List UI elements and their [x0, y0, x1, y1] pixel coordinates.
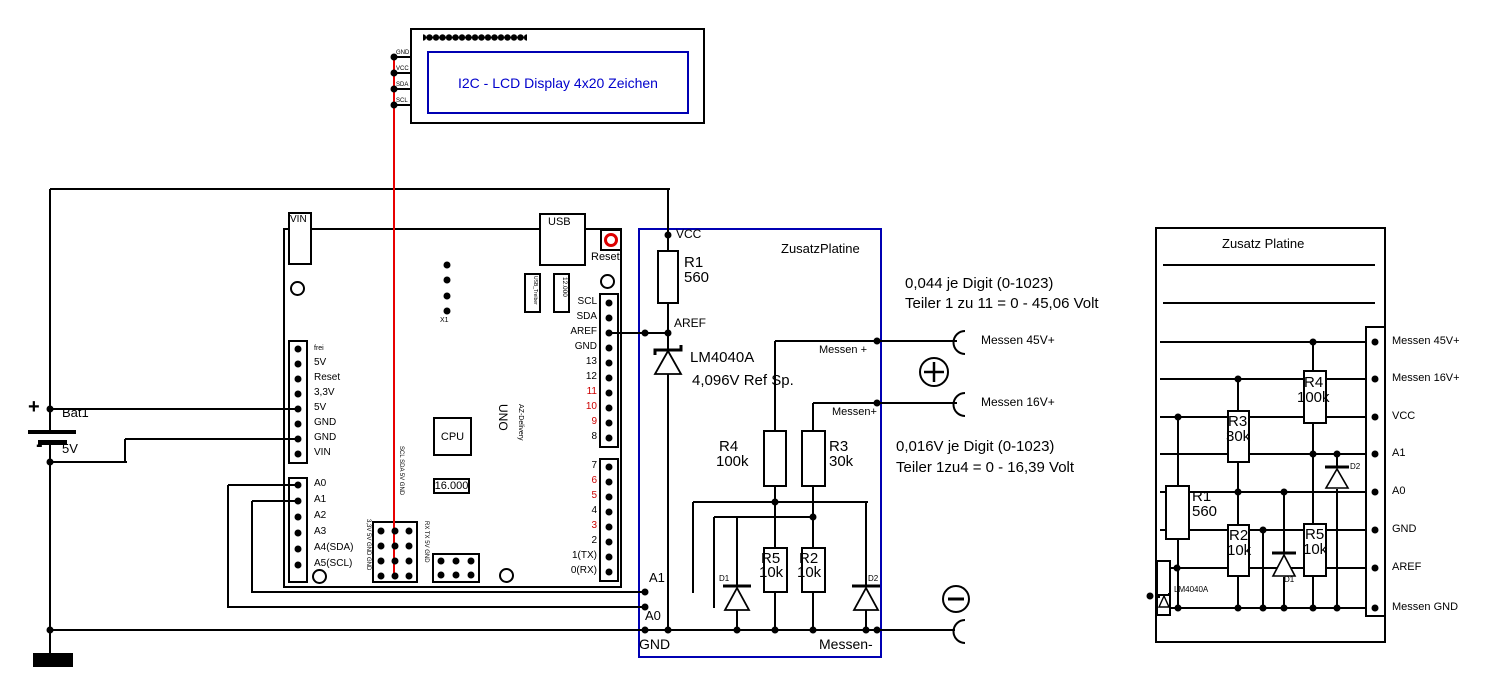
wire-segment	[124, 439, 126, 463]
junction-dot	[438, 572, 445, 579]
wire-segment	[692, 502, 694, 593]
analog-pin-label: A3	[314, 526, 326, 537]
vcc-label: VCC	[676, 228, 701, 241]
junction-dot	[1372, 605, 1379, 612]
layout-resistor-r1	[1165, 485, 1190, 540]
junction-dot	[295, 514, 302, 521]
junction-dot	[606, 539, 613, 546]
diode-d2-label: D2	[868, 575, 878, 584]
junction-dot	[665, 330, 672, 337]
crystal-16mhz: 16.000	[433, 478, 470, 494]
junction-dot	[444, 277, 451, 284]
junction-dot	[1310, 605, 1317, 612]
digital-pin-label: 0(RX)	[555, 565, 597, 576]
junction-dot	[1310, 339, 1317, 346]
junction-dot	[1260, 605, 1267, 612]
junction-dot	[406, 573, 413, 580]
diode-d2	[851, 584, 881, 612]
battery-name: Bat1	[62, 406, 89, 420]
junction-dot	[1372, 376, 1379, 383]
vref-value-label: 4,096V Ref Sp.	[692, 373, 794, 390]
wire-segment	[1177, 540, 1179, 609]
digital-pin-label: 9	[555, 416, 597, 427]
power-pin-label: frei	[314, 345, 324, 353]
layout-r3-value: 30k	[1226, 429, 1250, 446]
wire-segment	[50, 461, 127, 463]
resistor-r3	[801, 430, 826, 487]
junction-dot	[438, 558, 445, 565]
junction-dot	[1235, 376, 1242, 383]
reset-label: Reset	[591, 251, 620, 263]
junction-dot	[606, 420, 613, 427]
junction-dot	[642, 330, 649, 337]
junction-dot	[606, 345, 613, 352]
junction-dot	[406, 543, 413, 550]
layout-diode-d2	[1324, 465, 1350, 490]
junction-dot	[772, 499, 779, 506]
junction-dot	[1281, 489, 1288, 496]
power-pin-label: 5V	[314, 402, 326, 413]
junction-dot	[1372, 565, 1379, 572]
a1-pin-label: A1	[649, 571, 665, 585]
wire-segment	[608, 332, 670, 334]
note-45v-line1: 0,044 je Digit (0-1023)	[905, 276, 1053, 293]
wire-segment	[1312, 342, 1314, 371]
messen-minus-label: Messen-	[819, 637, 873, 652]
junction-dot	[392, 558, 399, 565]
cpu-chip: CPU	[433, 417, 472, 456]
terminal-messen16	[949, 391, 975, 417]
junction-dot	[606, 435, 613, 442]
wire-segment	[1177, 417, 1179, 486]
junction-dot	[295, 361, 302, 368]
digital-pin-label: 11	[555, 386, 597, 397]
wire-segment	[125, 438, 299, 440]
wire-segment	[812, 403, 814, 431]
layout-r4-value: 100k	[1297, 390, 1330, 407]
wire-segment	[1160, 416, 1365, 418]
junction-dot	[392, 543, 399, 550]
junction-dot	[295, 451, 302, 458]
plus-symbol	[918, 356, 950, 388]
note-16v-line1: 0,016V je Digit (0-1023)	[896, 439, 1054, 456]
junction-dot	[1372, 339, 1379, 346]
junction-dot	[606, 390, 613, 397]
digital-pin-label: 1(TX)	[555, 550, 597, 561]
lcd-display-area: I2C - LCD Display 4x20 Zeichen	[427, 51, 689, 114]
junction-dot	[606, 569, 613, 576]
crystal-label: 16.000	[435, 480, 469, 492]
junction-dot	[406, 558, 413, 565]
junction-dot	[606, 464, 613, 471]
layout-r5-value: 10k	[1303, 542, 1327, 559]
terminal-messen16-label: Messen 16V+	[981, 396, 1055, 409]
analog-pin-label: A0	[314, 478, 326, 489]
wire-segment	[1237, 379, 1239, 411]
battery-plus-sign: +	[28, 396, 40, 418]
digital-pin-label: 4	[555, 505, 597, 516]
junction-dot	[606, 375, 613, 382]
junction-dot	[606, 554, 613, 561]
junction-dot	[1372, 451, 1379, 458]
layout-pin-label: GND	[1392, 523, 1416, 535]
junction-dot	[1372, 527, 1379, 534]
digital-header-bottom	[599, 458, 619, 582]
junction-dot	[665, 627, 672, 634]
junction-dot	[378, 558, 385, 565]
power-pin-label: 5V	[314, 357, 326, 368]
wire-segment	[1163, 264, 1375, 266]
layout-board-title: Zusatz Platine	[1222, 237, 1304, 251]
resistor-r2-value: 10k	[797, 565, 821, 582]
analog-pin-label: A4(SDA)	[314, 542, 353, 553]
layout-pin-label: A0	[1392, 485, 1405, 497]
lcd-display-label: I2C - LCD Display 4x20 Zeichen	[458, 75, 658, 91]
digital-pin-label: 12	[555, 371, 597, 382]
digital-pin-label: 5	[555, 490, 597, 501]
junction-dot	[444, 293, 451, 300]
wire-segment	[693, 501, 868, 503]
junction-dot	[406, 528, 413, 535]
wire-segment	[49, 189, 51, 431]
junction-dot	[606, 524, 613, 531]
junction-dot	[444, 308, 451, 315]
junction-dot	[295, 546, 302, 553]
wire-segment	[736, 517, 738, 587]
digital-pin-label: AREF	[555, 326, 597, 337]
junction-dot	[295, 498, 302, 505]
junction-dot	[606, 479, 613, 486]
wire-segment	[227, 485, 229, 608]
junction-dot	[606, 300, 613, 307]
junction-dot	[295, 406, 302, 413]
junction-dot	[1310, 451, 1317, 458]
layout-r1-value: 560	[1192, 504, 1217, 521]
lcd-pin-label: VCC	[396, 66, 409, 73]
usb-label: USB	[548, 216, 571, 228]
junction-dot	[1147, 593, 1154, 600]
junction-dot	[810, 627, 817, 634]
layout-vref-label: LM4040A	[1174, 586, 1208, 595]
layout-diode-d1	[1271, 551, 1297, 578]
wire-segment	[50, 188, 670, 190]
resistor-r1-value: 560	[684, 270, 709, 287]
wire-segment	[1163, 302, 1375, 304]
wire-segment	[774, 487, 776, 548]
wire-segment	[1262, 530, 1264, 609]
junction-dot	[1334, 451, 1341, 458]
digital-pin-label: GND	[555, 341, 597, 352]
wire-segment	[775, 340, 957, 342]
digital-pin-label: 6	[555, 475, 597, 486]
junction-dot	[47, 627, 54, 634]
junction-dot	[295, 391, 302, 398]
layout-pin-label: VCC	[1392, 410, 1415, 422]
analog-pin-label: A2	[314, 510, 326, 521]
diode-d1-label: D1	[719, 575, 729, 584]
power-header	[288, 340, 308, 464]
messen-plus-16-label: Messen+	[832, 406, 877, 418]
junction-dot	[1235, 605, 1242, 612]
digital-pin-label: SCL	[555, 296, 597, 307]
a0-pin-label: A0	[645, 609, 661, 623]
junction-dot	[810, 514, 817, 521]
junction-dot	[642, 589, 649, 596]
usb-chip-label: USB_Treiber	[532, 276, 538, 305]
layout-pin-label: Messen 45V+	[1392, 335, 1460, 347]
junction-dot	[468, 572, 475, 579]
junction-dot	[295, 530, 302, 537]
wire-segment	[1336, 489, 1338, 609]
junction-dot	[1372, 489, 1379, 496]
mounting-hole	[600, 274, 615, 289]
layout-d1-label: D1	[1284, 576, 1294, 585]
cpu-label: CPU	[441, 431, 464, 443]
junction-dot	[295, 436, 302, 443]
wire-segment	[713, 517, 715, 608]
junction-dot	[453, 572, 460, 579]
junction-dot	[606, 330, 613, 337]
junction-dot	[1281, 605, 1288, 612]
wire-segment	[865, 502, 867, 587]
battery-minus-sign: -	[36, 434, 43, 456]
note-16v-line2: Teiler 1zu4 = 0 - 16,39 Volt	[896, 460, 1074, 477]
resistor-r1	[657, 250, 679, 304]
i2c-wire	[393, 54, 395, 578]
junction-dot	[1175, 605, 1182, 612]
vin-label: VIN	[290, 214, 307, 225]
digital-pin-label: 13	[555, 356, 597, 367]
ground-symbol	[33, 653, 73, 667]
terminal-messen45-label: Messen 45V+	[981, 334, 1055, 347]
wire-segment	[812, 592, 814, 631]
layout-zener-symbol	[1157, 592, 1171, 610]
messen-plus-45-label: Messen +	[819, 344, 867, 356]
layout-pin-label: Messen GND	[1392, 601, 1458, 613]
junction-dot	[47, 406, 54, 413]
uno-label: UNO	[496, 404, 510, 431]
zener-lm4040a	[650, 344, 686, 376]
junction-dot	[392, 573, 399, 580]
junction-dot	[378, 573, 385, 580]
junction-dot	[606, 509, 613, 516]
junction-dot	[665, 232, 672, 239]
junction-dot	[47, 459, 54, 466]
junction-dot	[642, 627, 649, 634]
mounting-hole	[290, 281, 305, 296]
wire-segment	[1160, 341, 1365, 343]
battery-voltage: 5V	[62, 442, 78, 456]
junction-dot	[295, 346, 302, 353]
junction-dot	[606, 360, 613, 367]
gnd-pin-label: GND	[639, 637, 670, 652]
resistor-r4-value: 100k	[716, 454, 749, 471]
digital-pin-label: 3	[555, 520, 597, 531]
junction-dot	[295, 376, 302, 383]
layout-d2-label: D2	[1350, 463, 1360, 472]
junction-dot	[378, 528, 385, 535]
junction-dot	[874, 627, 881, 634]
digital-pin-label: 7	[555, 460, 597, 471]
junction-dot	[378, 543, 385, 550]
wire-segment	[1160, 378, 1365, 380]
wire-segment	[228, 484, 299, 486]
junction-dot	[1235, 489, 1242, 496]
terminal-messen45	[949, 329, 975, 355]
junction-dot	[863, 627, 870, 634]
wire-segment	[252, 500, 299, 502]
junction-dot	[606, 494, 613, 501]
junction-dot	[444, 262, 451, 269]
x1-label: X1	[440, 317, 449, 325]
analog-pin-label: A5(SCL)	[314, 558, 352, 569]
junction-dot	[1175, 414, 1182, 421]
junction-dot	[1174, 565, 1181, 572]
junction-dot	[1260, 527, 1267, 534]
junction-dot	[295, 562, 302, 569]
junction-dot	[1372, 414, 1379, 421]
mounting-hole	[312, 569, 327, 584]
layout-pin-label: A1	[1392, 447, 1405, 459]
junction-dot	[295, 421, 302, 428]
digital-pin-label: SDA	[555, 311, 597, 322]
wire-segment	[1160, 491, 1365, 493]
wire-segment	[667, 374, 669, 631]
junction-dot	[453, 558, 460, 565]
wire-segment	[252, 591, 646, 593]
digital-pin-label: 2	[555, 535, 597, 546]
wire-segment	[50, 629, 955, 631]
zusatzplatine-title: ZusatzPlatine	[781, 242, 860, 256]
wire-segment	[251, 501, 253, 593]
layout-pin-label: AREF	[1392, 561, 1421, 573]
icsp-label-right: RX TX 5V GND	[423, 521, 429, 563]
layout-pin-strip	[1365, 326, 1386, 617]
junction-dot	[606, 315, 613, 322]
resistor-r5-value: 10k	[759, 565, 783, 582]
resistor-r3-value: 30k	[829, 454, 853, 471]
lcd-pin-label: SCL	[396, 98, 408, 105]
reset-button[interactable]	[604, 233, 618, 247]
aref-label: AREF	[674, 317, 706, 330]
layout-r2-value: 10k	[1227, 543, 1251, 560]
wire-segment	[714, 516, 815, 518]
layout-board-outline	[1155, 227, 1386, 643]
note-45v-line2: Teiler 1 zu 11 = 0 - 45,06 Volt	[905, 296, 1099, 313]
wire-segment	[49, 444, 51, 655]
icsp-label-top: SCL SDA 5V GND	[398, 446, 404, 495]
wire-segment	[813, 402, 957, 404]
wire-segment	[774, 592, 776, 631]
power-pin-label: GND	[314, 432, 336, 443]
power-pin-label: Reset	[314, 372, 340, 383]
junction-dot	[1334, 605, 1341, 612]
digital-pin-label: 10	[555, 401, 597, 412]
crystal-12mhz-label: 12.000	[561, 277, 568, 297]
schematic-canvas: I2C - LCD Display 4x20 Zeichen CPU 16.00…	[0, 0, 1504, 691]
brand-label: AZ-Delivery	[517, 404, 524, 441]
wire-segment	[1283, 492, 1285, 554]
wire-segment	[1312, 424, 1314, 524]
wire-segment	[667, 189, 669, 252]
lcd-pin-row	[423, 33, 527, 42]
layout-pin-label: Messen 16V+	[1392, 372, 1460, 384]
power-pin-label: 3,3V	[314, 387, 335, 398]
resistor-r4	[763, 430, 787, 487]
power-pin-label: GND	[314, 417, 336, 428]
wire-segment	[228, 606, 646, 608]
lcd-pin-label: SDA	[396, 82, 408, 89]
digital-pin-label: 8	[555, 431, 597, 442]
mounting-hole	[499, 568, 514, 583]
power-pin-label: VIN	[314, 447, 331, 458]
minus-symbol	[941, 584, 971, 614]
wire-segment	[667, 304, 669, 349]
lcd-pin-label: GND	[396, 50, 409, 57]
junction-dot	[468, 558, 475, 565]
vref-name-label: LM4040A	[690, 350, 754, 367]
icsp-label-left: 3,3V 5V GND GND	[365, 519, 371, 570]
analog-pin-label: A1	[314, 494, 326, 505]
junction-dot	[295, 482, 302, 489]
terminal-messen-gnd	[949, 618, 975, 644]
junction-dot	[772, 627, 779, 634]
junction-dot	[392, 528, 399, 535]
junction-dot	[874, 338, 881, 345]
diode-d1	[722, 584, 752, 612]
junction-dot	[606, 405, 613, 412]
junction-dot	[734, 627, 741, 634]
